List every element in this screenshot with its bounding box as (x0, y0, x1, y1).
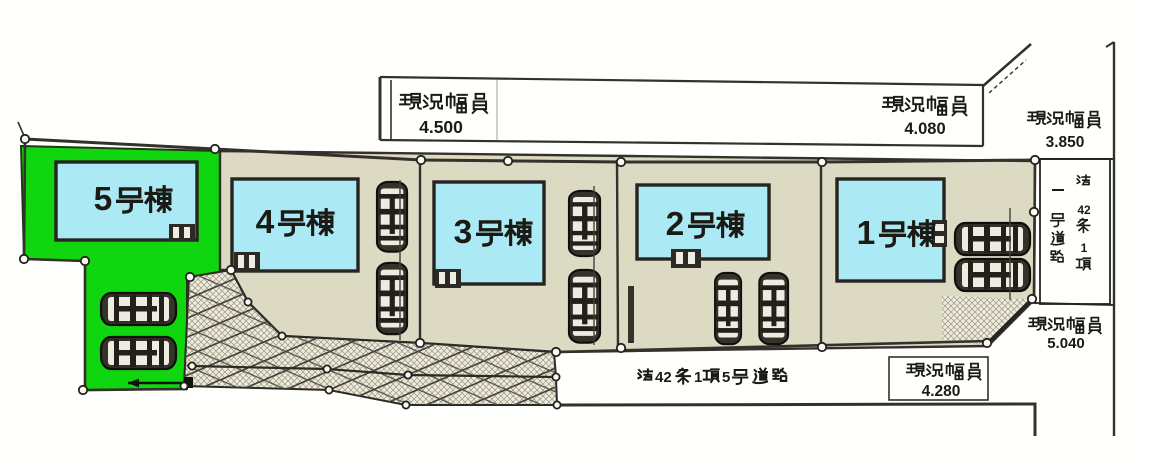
svg-text:5: 5 (94, 181, 113, 218)
svg-text:4.080: 4.080 (904, 120, 945, 138)
svg-text:3: 3 (454, 214, 473, 251)
svg-text:42: 42 (655, 369, 672, 386)
svg-text:4.500: 4.500 (419, 117, 463, 137)
svg-text:4: 4 (256, 204, 275, 241)
svg-text:4.280: 4.280 (922, 383, 961, 400)
svg-text:42: 42 (1077, 203, 1091, 217)
svg-text:3.850: 3.850 (1046, 134, 1085, 151)
svg-text:2: 2 (666, 206, 685, 243)
svg-text:1: 1 (857, 215, 876, 252)
svg-text:5.040: 5.040 (1047, 335, 1085, 352)
svg-text:1: 1 (1081, 241, 1088, 255)
svg-text:5: 5 (722, 369, 730, 386)
svg-text:1: 1 (694, 369, 702, 386)
